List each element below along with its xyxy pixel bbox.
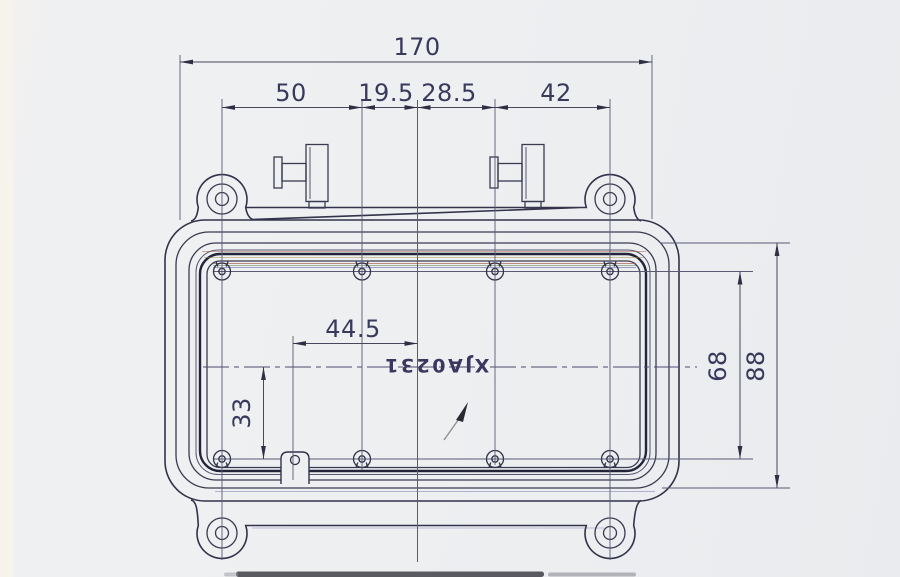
dimension-overall-width: 170 <box>180 33 652 220</box>
screw-bosses-top <box>214 262 619 281</box>
cable-gland-right <box>490 145 544 209</box>
dim-label-88: 88 <box>742 350 770 382</box>
dim-label-19-5: 19.5 <box>358 79 413 107</box>
dimension-chain-top: 50 19.5 28.5 42 <box>222 79 610 110</box>
dim-label-44-5: 44.5 <box>325 315 380 343</box>
square-boss <box>281 452 309 484</box>
scanned-drawing-page: 170 50 19.5 28.5 42 44.5 33 68 <box>0 0 900 577</box>
gland-head <box>306 145 328 202</box>
scan-color-fringes <box>202 252 655 529</box>
gland-stem <box>498 164 522 182</box>
paper-edge <box>0 0 14 577</box>
part-number-text: XJA0231 <box>383 354 490 376</box>
leader-arrow <box>444 402 468 440</box>
dimension-hole-rows: 68 <box>704 272 742 460</box>
dim-label-50: 50 <box>275 79 307 107</box>
scan-smudge <box>224 572 636 577</box>
dimension-offset-horizontal: 44.5 <box>293 315 418 346</box>
dim-label-170: 170 <box>393 33 440 61</box>
gland-head <box>522 145 544 202</box>
top-plateau-profile <box>191 175 641 221</box>
dim-label-33: 33 <box>228 397 256 429</box>
column-extension-lines <box>222 99 610 560</box>
dim-label-42: 42 <box>540 79 572 107</box>
cable-gland-left <box>274 145 328 209</box>
gland-cap <box>490 157 498 188</box>
bottom-plateau-profile <box>191 500 641 558</box>
centerlines <box>203 100 697 562</box>
dimension-offset-vertical: 33 <box>228 367 266 459</box>
gland-stem <box>282 164 306 182</box>
dim-label-28-5: 28.5 <box>421 79 476 107</box>
dim-label-68: 68 <box>704 350 732 382</box>
gland-cap <box>274 157 282 188</box>
engineering-drawing-canvas: 170 50 19.5 28.5 42 44.5 33 68 <box>0 0 900 577</box>
